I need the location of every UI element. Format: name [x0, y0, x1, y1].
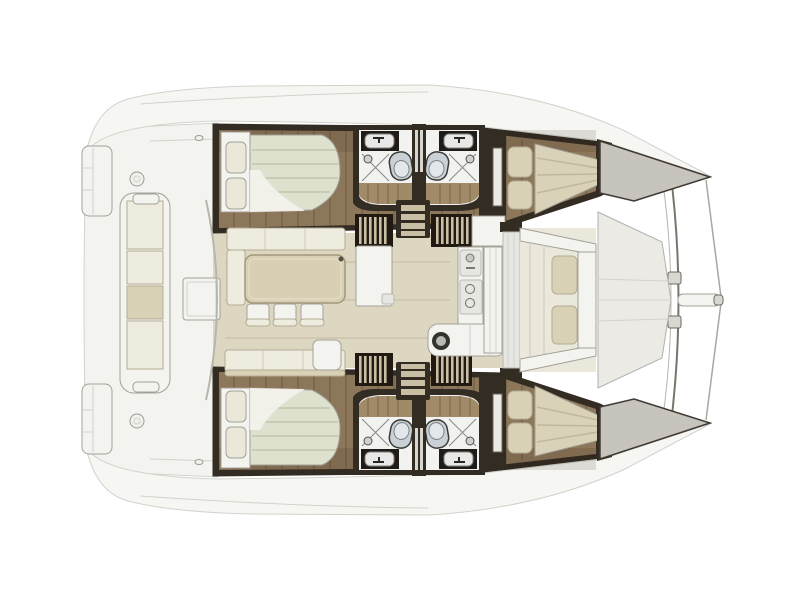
- bench-armrest: [133, 382, 159, 392]
- seat-end-unit: [313, 340, 341, 370]
- forward-window-band: [503, 232, 520, 368]
- bowsprit-tip: [714, 295, 723, 305]
- dining-chair: [273, 304, 297, 326]
- cockpit-seat-bench: [578, 252, 596, 348]
- galley-sink: [460, 250, 481, 276]
- pillow: [226, 142, 246, 173]
- ladder-tread: [401, 214, 425, 220]
- catamaran-floor-plan: [0, 0, 800, 600]
- dining-table: [245, 255, 345, 303]
- door-post: [500, 222, 522, 232]
- bench-cushion: [127, 251, 163, 284]
- ladder-tread: [401, 205, 425, 211]
- bench-cushion: [127, 321, 163, 369]
- dining-chair: [300, 304, 324, 326]
- pillow: [226, 178, 246, 209]
- aft-cabin: [221, 132, 340, 212]
- table-fitting: [339, 257, 344, 262]
- seat-cushion: [552, 256, 577, 294]
- foredeck: [598, 212, 671, 388]
- corner-sink-inner: [436, 336, 446, 346]
- cockpit-table: [183, 278, 220, 320]
- bridle-line: [706, 303, 721, 420]
- dining-chair: [246, 304, 270, 326]
- stairs-aft: [355, 214, 393, 247]
- settee-top-bench: [227, 228, 345, 250]
- settee-bottom-back: [225, 370, 345, 376]
- floor-plan-canvas: [0, 0, 800, 600]
- heads-compartment: [353, 124, 485, 212]
- bathroom-mirrored: [424, 130, 479, 205]
- divider-door: [420, 130, 423, 172]
- seat-cushion: [552, 306, 577, 344]
- bench-cushion: [127, 201, 163, 249]
- bench-cushion: [127, 286, 163, 319]
- swim-platform: [82, 146, 112, 216]
- pillow: [508, 181, 532, 209]
- bathroom: [359, 130, 414, 205]
- crossbeam-fitting: [668, 316, 681, 328]
- stove-icon: [460, 280, 482, 314]
- divider-door: [415, 130, 418, 172]
- wardrobe-door: [493, 148, 502, 206]
- pillow: [508, 147, 532, 177]
- ladder-tread: [401, 231, 425, 236]
- door-post: [500, 368, 522, 378]
- deck-fitting: [195, 136, 203, 141]
- crossbeam-fitting: [668, 272, 681, 284]
- cabinet-handle: [382, 294, 394, 304]
- settee-left-arm: [227, 250, 245, 305]
- deck-hatch: [130, 172, 144, 186]
- stairs-forward: [431, 214, 472, 247]
- shower-head-icon: [364, 155, 372, 163]
- bridle-line: [706, 180, 721, 297]
- sliding-door: [484, 247, 502, 353]
- ladder-tread: [401, 223, 425, 229]
- bench-armrest: [133, 194, 159, 204]
- heads-divider-wall: [412, 124, 426, 212]
